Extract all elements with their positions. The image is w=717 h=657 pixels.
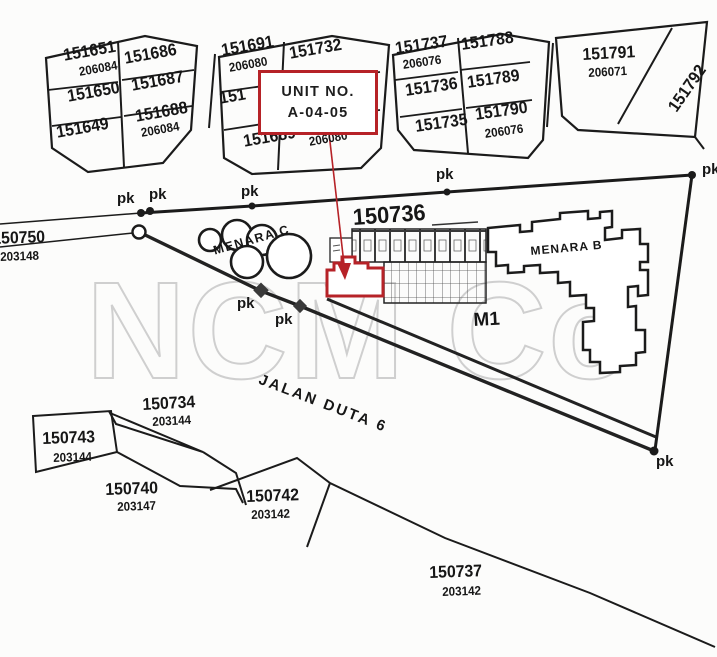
- plan-ref-label: 203142: [442, 585, 481, 599]
- pk-marker-label: pk: [149, 187, 167, 202]
- pk-marker-label: pk: [117, 191, 135, 206]
- lot-label: 150740: [105, 479, 158, 498]
- lot-label: 150742: [246, 486, 299, 505]
- cadastral-site-plan: NCM Co TM: [0, 0, 717, 657]
- lot-label: 151791: [582, 43, 636, 63]
- pk-marker-label: pk: [237, 296, 255, 311]
- dimension-tick: [432, 222, 478, 225]
- unit-annotation-title: UNIT NO.: [281, 85, 354, 100]
- unit-annotation-box: UNIT NO. A-04-05: [258, 70, 378, 135]
- unit-annotation-number: A-04-05: [288, 106, 349, 121]
- pk-marker-label: pk: [241, 184, 259, 199]
- menara-b-footprint: [488, 211, 648, 373]
- lot-label: 150737: [429, 562, 482, 581]
- survey-point-open-circle: [133, 226, 146, 239]
- plan-ref-label: 203147: [117, 500, 156, 514]
- lot-label: 150750: [0, 228, 45, 247]
- plan-ref-label: 203148: [0, 250, 39, 264]
- pk-marker-label: pk: [436, 167, 454, 182]
- pk-marker-label: pk: [702, 162, 717, 177]
- red-unit-outline: [327, 257, 383, 296]
- plan-ref-label: 206071: [588, 65, 627, 80]
- plan-ref-label: 203144: [53, 451, 92, 465]
- east-boundary-line: [655, 175, 692, 450]
- plan-ref-label: 203142: [251, 508, 290, 522]
- building-strip-upper: [352, 229, 486, 262]
- lot-label: 150743: [42, 428, 95, 447]
- building-strip-lower: [384, 262, 486, 303]
- m1-label: M1: [473, 310, 500, 330]
- main-lot-label: 150736: [352, 201, 426, 229]
- lot-label: 150734: [142, 393, 196, 413]
- plan-ref-label: 203144: [152, 414, 191, 429]
- lot-label-partial: 151: [218, 85, 247, 106]
- pk-marker-label: pk: [656, 454, 674, 469]
- pk-marker-label: pk: [275, 312, 293, 327]
